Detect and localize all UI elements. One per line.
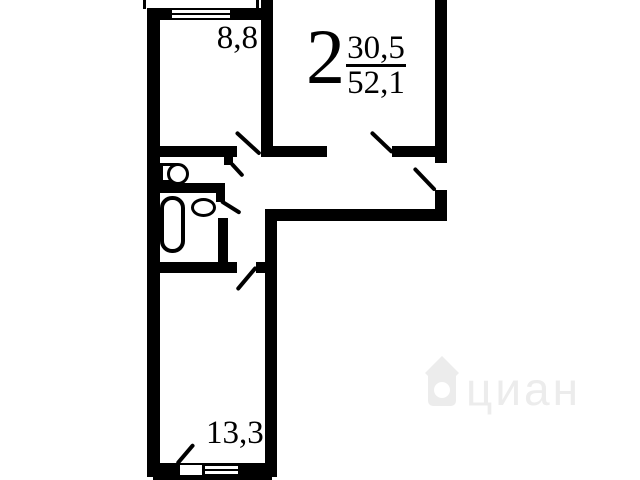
wall-left-outer: [147, 8, 160, 477]
room-area-label-1: 8,8: [210, 22, 258, 55]
bathtub-icon: [160, 196, 185, 253]
plan-title-rooms-count: 2: [306, 24, 345, 90]
floor-plan: 8,8 13,3 2 30,5 52,1 циан: [0, 0, 640, 480]
balcony-door-room2: [180, 465, 202, 475]
wall-inner-vertical: [265, 209, 277, 477]
wall-wc-divider: [147, 183, 225, 193]
toilet-bowl-icon: [167, 163, 189, 185]
wall-room1-right: [261, 0, 273, 157]
watermark-house-icon: [424, 358, 460, 408]
watermark-text: циан: [466, 366, 581, 412]
wall-bath-bottom: [147, 262, 237, 273]
wall-right-upper: [435, 0, 447, 163]
door-swing-entrance: [413, 167, 437, 192]
plan-title-fraction: 30,5 52,1: [346, 34, 406, 97]
sink-icon: [191, 198, 216, 217]
door-swing-balcony: [175, 443, 195, 465]
wall-corridor-top-mid: [261, 146, 327, 157]
door-swing-bath: [220, 199, 242, 215]
wall-bath-right: [218, 218, 228, 265]
plan-title-value-top: 30,5: [347, 34, 405, 62]
room-area-label-2: 13,3: [206, 417, 262, 450]
door-swing-room1: [235, 131, 262, 156]
door-swing-room2: [235, 266, 257, 292]
window-room1-line: [172, 13, 230, 15]
plan-title-value-bottom: 52,1: [347, 69, 405, 97]
balcony-top-left-line: [143, 0, 146, 9]
door-swing-wc: [230, 162, 245, 178]
window-room2-line: [205, 469, 238, 471]
balcony-top-right-line: [256, 0, 259, 9]
watermark: циан: [424, 358, 581, 412]
watermark-house-hole: [434, 382, 450, 398]
wall-room2-top-right: [256, 262, 277, 273]
wall-corridor-bottom: [265, 209, 447, 221]
door-swing-living-room: [370, 131, 394, 155]
